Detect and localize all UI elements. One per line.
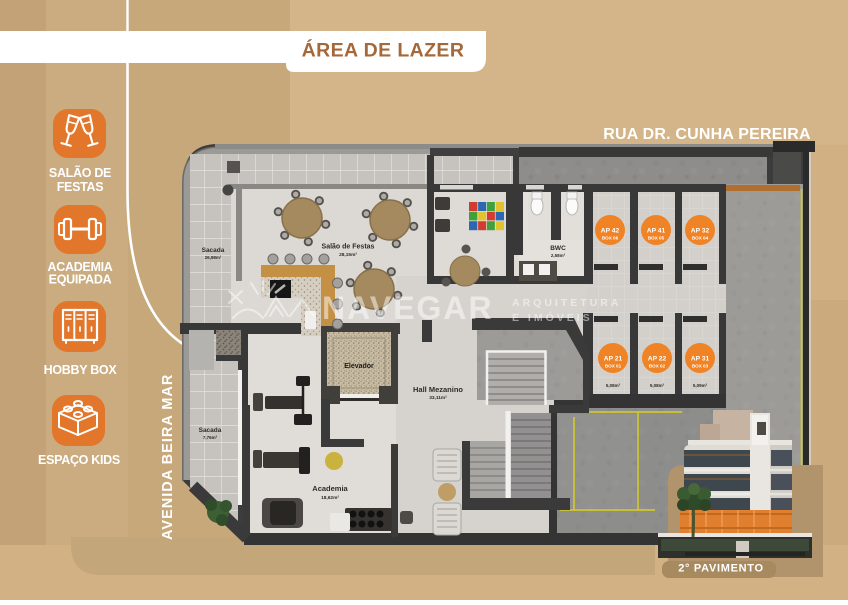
svg-text:ARQUITETURA: ARQUITETURA [512,297,621,309]
svg-text:RUA DR. CUNHA PEREIRA: RUA DR. CUNHA PEREIRA [603,126,811,143]
svg-text:28,15m²: 28,15m² [339,252,357,258]
svg-text:Salão de Festas: Salão de Festas [322,244,375,251]
svg-text:Academia: Academia [312,484,348,493]
svg-text:BOX 02: BOX 02 [649,364,666,369]
svg-text:ESPAÇO KIDS: ESPAÇO KIDS [38,453,120,467]
svg-text:AP 32: AP 32 [691,228,710,235]
svg-text:AP 22: AP 22 [648,356,667,363]
svg-text:AP 31: AP 31 [691,356,710,363]
svg-text:2,58m²: 2,58m² [551,253,566,258]
svg-text:BOX 01: BOX 01 [605,364,622,369]
svg-text:BOX 03: BOX 03 [692,364,709,369]
svg-text:EQUIPADA: EQUIPADA [49,273,112,287]
svg-text:BWC: BWC [550,245,566,252]
svg-text:BOX 04: BOX 04 [692,236,709,241]
svg-text:7,76m²: 7,76m² [203,435,218,440]
svg-text:SALÃO DE: SALÃO DE [49,165,111,180]
svg-text:FESTAS: FESTAS [57,180,104,194]
svg-text:NAVEGAR: NAVEGAR [322,290,494,326]
svg-text:AVENIDA BEIRA MAR: AVENIDA BEIRA MAR [160,374,176,540]
svg-text:BOX 05: BOX 05 [648,236,665,241]
svg-text:2° PAVIMENTO: 2° PAVIMENTO [678,563,764,575]
svg-text:18,62m²: 18,62m² [321,495,339,501]
svg-text:E IMÓVEIS: E IMÓVEIS [512,311,593,324]
svg-text:HOBBY BOX: HOBBY BOX [44,363,118,377]
svg-text:AP 41: AP 41 [647,228,666,235]
svg-text:Sacada: Sacada [199,427,222,434]
svg-text:5,08m²: 5,08m² [606,383,621,388]
svg-text:AP 21: AP 21 [604,356,623,363]
svg-text:BOX 06: BOX 06 [602,236,619,241]
svg-text:Sacada: Sacada [202,247,225,254]
svg-text:26,98m²: 26,98m² [205,255,222,260]
svg-text:Hall Mezanino: Hall Mezanino [413,385,463,394]
svg-text:33,11m²: 33,11m² [429,395,447,401]
svg-text:5,08m²: 5,08m² [650,383,665,388]
svg-text:ÁREA DE LAZER: ÁREA DE LAZER [302,39,465,62]
svg-text:Elevador: Elevador [344,363,374,370]
svg-text:5,09m²: 5,09m² [693,383,708,388]
svg-text:AP 42: AP 42 [601,228,620,235]
